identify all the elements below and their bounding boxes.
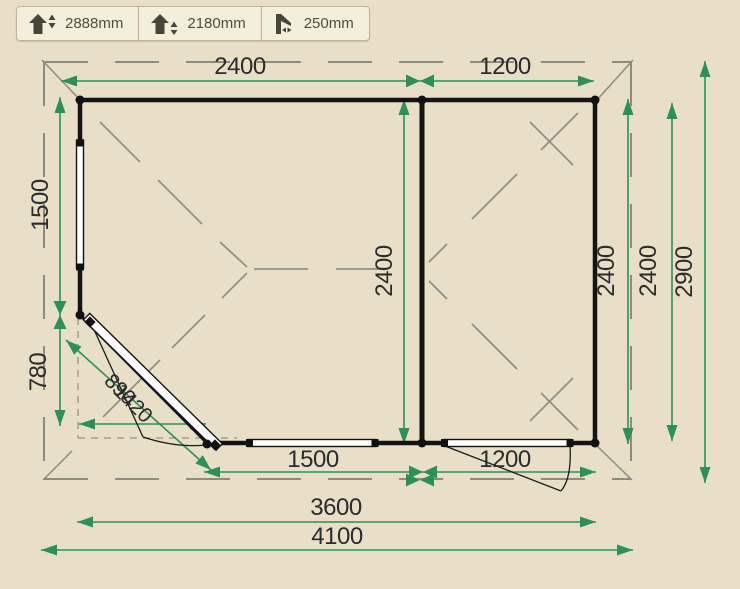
dim-overall-depth: 2900: [671, 246, 698, 298]
dim-overall: 4100: [311, 523, 363, 550]
toolbar: 2888mm 2180mm 250mm: [16, 6, 370, 41]
dim-top-left: 2400: [214, 53, 266, 80]
roof-overhang-value: 250mm: [304, 15, 354, 32]
dim-top-right: 1200: [479, 53, 531, 80]
dim-inner-depth: 2400: [371, 245, 398, 297]
dimension-lines: [41, 61, 705, 550]
wall-nodes: [76, 96, 600, 451]
dim-right-inner: 2400: [593, 245, 620, 297]
floor-plan-canvas: 2400 1200 1500 1200 3600 4100 1500 780 2…: [0, 0, 740, 589]
dimension-arrows: [41, 61, 711, 556]
dim-left-upper: 1500: [27, 179, 54, 231]
eaves-height-icon: [150, 13, 178, 35]
dim-right-wall: 2400: [635, 245, 662, 297]
ridge-height-value: 2888mm: [65, 15, 123, 32]
dim-bottom-left: 1500: [287, 446, 339, 473]
dim-bottom-right: 1200: [479, 446, 531, 473]
roof-hip-lines: [100, 113, 578, 430]
dim-left-corner: 780: [25, 353, 52, 392]
roof-overhang-button[interactable]: 250mm: [261, 6, 370, 41]
eaves-height-button[interactable]: 2180mm: [138, 6, 261, 41]
dim-total-wall: 3600: [310, 494, 362, 521]
door-bottom-swing-arc: [561, 445, 570, 491]
window-left[interactable]: [77, 140, 84, 268]
ridge-height-icon: [28, 13, 56, 35]
openings: [77, 140, 572, 450]
eaves-height-value: 2180mm: [187, 15, 245, 32]
ridge-height-button[interactable]: 2888mm: [16, 6, 139, 41]
roof-overhang-icon: [273, 13, 295, 35]
